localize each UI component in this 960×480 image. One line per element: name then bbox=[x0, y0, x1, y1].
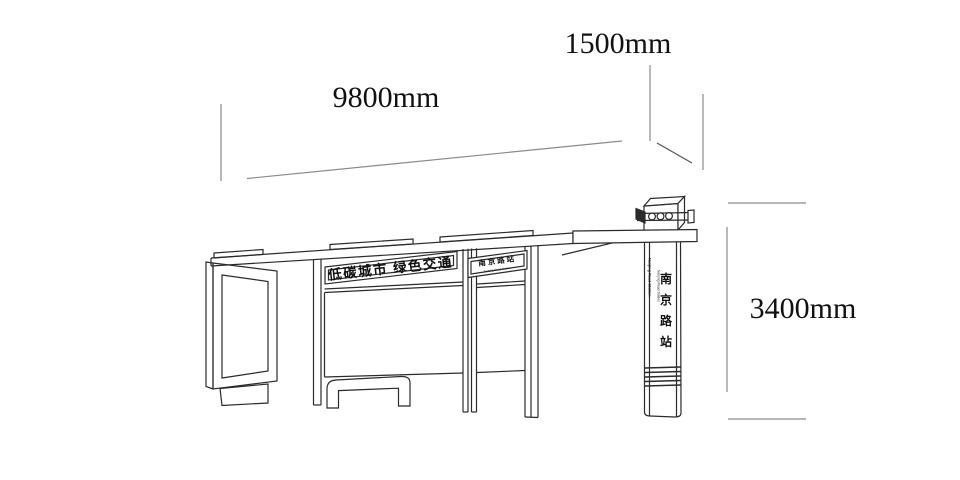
bus-shelter-drawing: 9800mm 1500mm 3400mm bbox=[0, 0, 960, 480]
pole-station-char-1: 南 bbox=[660, 271, 672, 286]
dim-label-9800: 9800mm bbox=[333, 81, 440, 114]
dimension-annotations bbox=[221, 65, 806, 419]
pole-station-char-2: 京 bbox=[660, 292, 672, 307]
roof-right-beam bbox=[573, 230, 697, 244]
glass-top-rail-lower bbox=[325, 286, 464, 293]
post-left bbox=[314, 259, 322, 406]
diagram-svg: 9800mm 1500mm 3400mm bbox=[0, 0, 960, 480]
pole-cap-device-endplate bbox=[688, 210, 694, 223]
station-glass-panel bbox=[477, 281, 525, 373]
pole-station-char-4: 站 bbox=[660, 334, 672, 349]
dim-9800-line bbox=[247, 141, 622, 179]
glass-top-rail-upper bbox=[325, 282, 464, 289]
roof-panel-3 bbox=[440, 231, 533, 243]
dim-1500-line bbox=[657, 143, 692, 163]
pole-station-char-3: 路 bbox=[660, 313, 673, 328]
roof-panel-2 bbox=[330, 239, 413, 250]
lightbox-inner-frame bbox=[222, 275, 268, 378]
ad-lightbox bbox=[206, 262, 277, 406]
dim-label-3400: 3400mm bbox=[750, 292, 857, 325]
post-right bbox=[525, 245, 538, 417]
lightbox-pedestal bbox=[220, 384, 268, 406]
pole-station-en-vertical: Nanjing Road Station bbox=[657, 270, 661, 302]
dim-label-1500: 1500mm bbox=[565, 27, 672, 60]
pole-side-vertical-text: Nanjing Road Station bbox=[648, 258, 652, 297]
bench bbox=[327, 376, 410, 408]
lightbox-side-face bbox=[206, 262, 213, 389]
main-glass-panel bbox=[325, 282, 464, 377]
